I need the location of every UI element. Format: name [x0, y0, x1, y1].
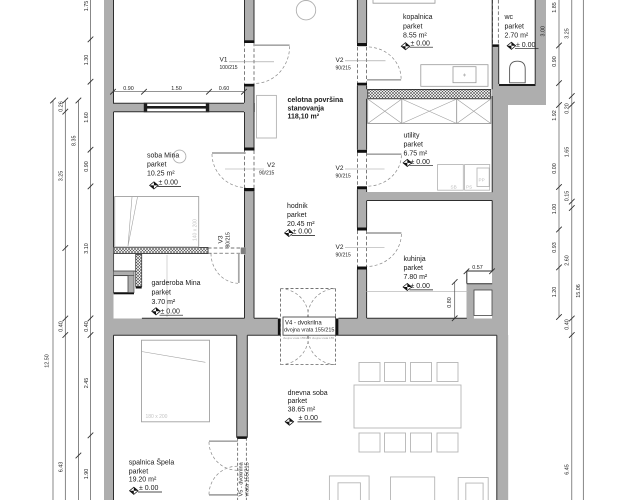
svg-text:0.40: 0.40 — [84, 321, 90, 332]
svg-text:dnevna soba: dnevna soba — [288, 390, 328, 397]
svg-text:vrata 155/215: vrata 155/215 — [245, 462, 251, 496]
svg-text:dvojna vrata 155/215 dvojna vr: dvojna vrata 155/215 dvojna vrata 155 — [283, 336, 334, 340]
svg-text:PP: PP — [479, 178, 485, 183]
svg-text:1.92: 1.92 — [552, 110, 558, 121]
svg-text:0.00: 0.00 — [552, 163, 558, 174]
svg-text:0.80: 0.80 — [447, 297, 453, 308]
svg-text:0.90: 0.90 — [552, 56, 558, 67]
svg-text:0.40: 0.40 — [59, 321, 65, 332]
svg-text:1.20: 1.20 — [552, 287, 558, 298]
svg-text:utility: utility — [404, 133, 420, 140]
svg-text:1.75: 1.75 — [84, 1, 90, 12]
svg-text:3.70 m²: 3.70 m² — [152, 299, 176, 306]
svg-text:± 0.00: ± 0.00 — [161, 308, 181, 315]
svg-text:3.00: 3.00 — [541, 26, 547, 37]
svg-text:parket: parket — [403, 24, 423, 31]
svg-text:soba Mina: soba Mina — [147, 152, 179, 159]
svg-text:2.45: 2.45 — [84, 378, 90, 389]
svg-text:stanovanja: stanovanja — [288, 105, 325, 112]
svg-text:2.70 m²: 2.70 m² — [505, 33, 529, 40]
svg-text:0.93: 0.93 — [552, 242, 558, 253]
svg-text:180 x 200: 180 x 200 — [146, 414, 168, 420]
svg-text:± 0.00: ± 0.00 — [411, 283, 431, 290]
svg-text:2.60: 2.60 — [565, 255, 571, 266]
svg-text:80/215: 80/215 — [226, 232, 232, 248]
svg-text:wc: wc — [504, 14, 514, 21]
svg-text:1.30: 1.30 — [84, 55, 90, 66]
svg-text:0.15: 0.15 — [565, 191, 571, 202]
svg-text:6.43: 6.43 — [59, 462, 65, 473]
svg-text:6.45: 6.45 — [565, 464, 571, 475]
svg-text:parket: parket — [152, 290, 172, 297]
svg-text:± 0.00: ± 0.00 — [293, 229, 313, 236]
svg-text:1.85: 1.85 — [552, 2, 558, 13]
svg-text:0.40: 0.40 — [565, 319, 571, 330]
svg-text:0.60: 0.60 — [219, 86, 230, 92]
svg-text:V4 - dvokrilna: V4 - dvokrilna — [285, 320, 322, 326]
svg-text:12.50: 12.50 — [45, 354, 51, 368]
svg-text:parket: parket — [288, 398, 308, 405]
svg-text:± 0.00: ± 0.00 — [139, 485, 159, 492]
svg-text:1.50: 1.50 — [171, 86, 182, 92]
svg-text:V2: V2 — [336, 57, 344, 64]
svg-text:parket: parket — [129, 468, 149, 475]
svg-text:38.65 m²: 38.65 m² — [288, 407, 316, 414]
svg-text:15.06: 15.06 — [576, 284, 582, 298]
svg-text:90/215: 90/215 — [259, 170, 275, 176]
svg-text:1.60: 1.60 — [84, 112, 90, 123]
svg-text:± 0.00: ± 0.00 — [411, 159, 431, 166]
svg-text:8.55 m²: 8.55 m² — [403, 33, 427, 40]
svg-text:PS: PS — [466, 184, 472, 189]
svg-text:0.90: 0.90 — [123, 86, 134, 92]
svg-text:3.25: 3.25 — [59, 171, 65, 182]
svg-text:garderoba Mina: garderoba Mina — [152, 280, 201, 287]
svg-text:± 0.00: ± 0.00 — [411, 40, 431, 47]
svg-text:± 0.00: ± 0.00 — [159, 180, 179, 187]
svg-text:hodnik: hodnik — [287, 203, 308, 210]
svg-text:90/215: 90/215 — [336, 252, 352, 258]
svg-text:19.20 m²: 19.20 m² — [129, 477, 157, 484]
svg-text:20.45 m²: 20.45 m² — [287, 221, 315, 228]
svg-text:parket: parket — [147, 162, 167, 169]
svg-text:1.90: 1.90 — [84, 469, 90, 480]
svg-text:± 0.00: ± 0.00 — [516, 42, 536, 49]
svg-text:V3: V3 — [218, 235, 225, 243]
svg-text:90/215: 90/215 — [336, 173, 352, 179]
svg-text:0.90: 0.90 — [84, 161, 90, 172]
svg-text:V2: V2 — [267, 162, 275, 169]
svg-text:parket: parket — [404, 265, 424, 272]
svg-text:8.35: 8.35 — [72, 136, 78, 147]
svg-text:kopalnica: kopalnica — [403, 14, 433, 21]
svg-text:spalnica Špela: spalnica Špela — [129, 458, 175, 467]
svg-text:kuhinja: kuhinja — [404, 256, 426, 263]
svg-text:100/215: 100/215 — [220, 65, 238, 71]
svg-text:1.65: 1.65 — [565, 147, 571, 158]
svg-text:1.00: 1.00 — [552, 204, 558, 215]
svg-text:parket: parket — [505, 24, 525, 31]
svg-text:6.75 m²: 6.75 m² — [404, 151, 428, 158]
svg-text:10.25 m²: 10.25 m² — [147, 171, 175, 178]
svg-text:7.80 m²: 7.80 m² — [404, 274, 428, 281]
svg-text:V2: V2 — [336, 244, 344, 251]
svg-text:3.10: 3.10 — [84, 243, 90, 254]
svg-text:V1: V1 — [220, 57, 228, 64]
svg-text:0.20: 0.20 — [565, 103, 571, 114]
svg-text:0.26: 0.26 — [59, 101, 65, 112]
svg-text:SB: SB — [451, 184, 457, 189]
svg-text:140 x 200: 140 x 200 — [193, 219, 199, 241]
svg-text:90/215: 90/215 — [336, 65, 352, 71]
svg-text:parket: parket — [287, 212, 307, 219]
svg-text:118,10 m²: 118,10 m² — [288, 114, 320, 121]
svg-text:± 0.00: ± 0.00 — [299, 415, 319, 422]
svg-text:0.57: 0.57 — [472, 265, 483, 271]
svg-text:3.25: 3.25 — [565, 28, 571, 39]
svg-text:parket: parket — [404, 142, 424, 149]
svg-text:dvojna vrata 155/215: dvojna vrata 155/215 — [284, 328, 334, 334]
svg-text:V2: V2 — [336, 165, 344, 172]
svg-text:celotna površina: celotna površina — [288, 97, 344, 104]
